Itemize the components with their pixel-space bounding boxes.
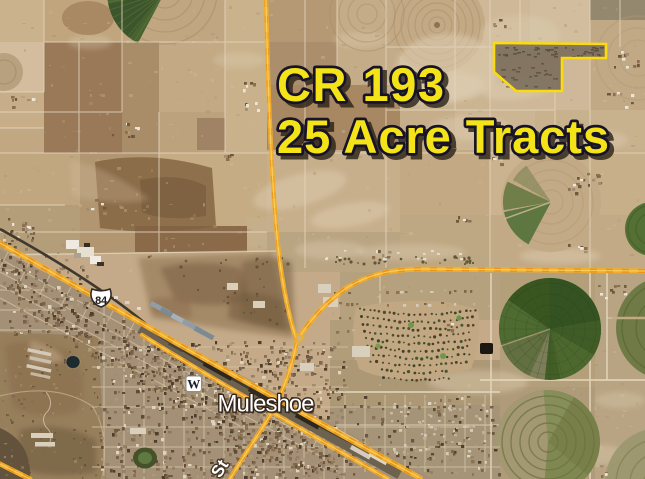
svg-text:W: W xyxy=(187,377,200,392)
svg-text:Muleshoe: Muleshoe xyxy=(218,391,315,418)
svg-text:84: 84 xyxy=(95,295,108,307)
svg-text:CR 193: CR 193 xyxy=(277,58,444,111)
svg-text:25 Acre Tracts: 25 Acre Tracts xyxy=(277,110,609,163)
